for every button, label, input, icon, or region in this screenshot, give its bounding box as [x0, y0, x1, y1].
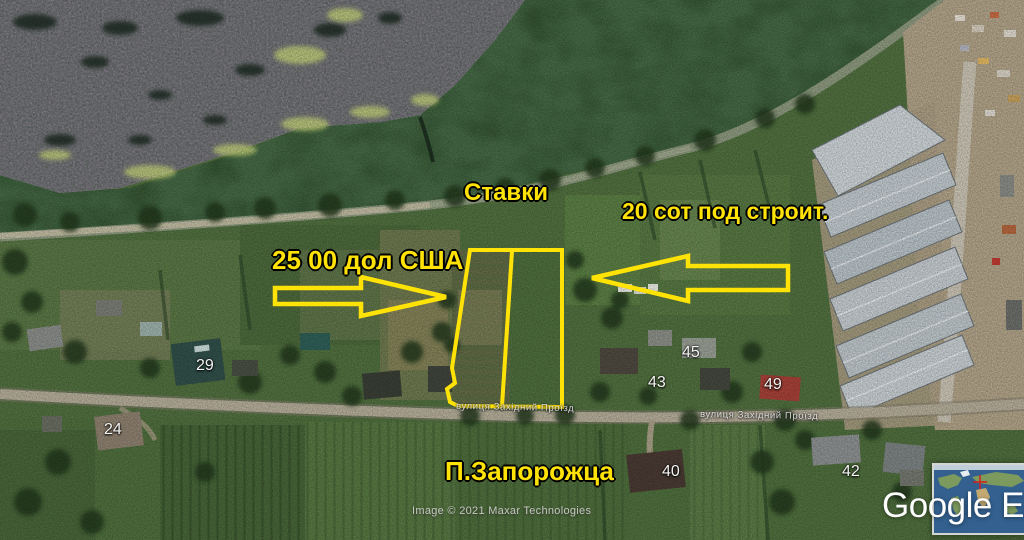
- label-settlement: П.Запорожца: [445, 456, 614, 487]
- house-number: 40: [662, 463, 680, 481]
- label-price: 25 00 дол США: [272, 245, 463, 276]
- house-number: 45: [682, 344, 700, 362]
- street-label: вулиця Західний Проїзд: [700, 409, 818, 422]
- imagery-credit: Image © 2021 Maxar Technologies: [412, 505, 591, 517]
- house-number: 43: [648, 374, 666, 392]
- google-earth-logo: Google Ea: [882, 486, 1024, 526]
- house-number: 24: [104, 421, 122, 439]
- house-number: 49: [764, 376, 782, 394]
- house-number: 42: [842, 463, 860, 481]
- label-ponds: Ставки: [464, 179, 548, 207]
- house-number: 29: [196, 357, 214, 375]
- google-earth-viewport[interactable]: Ставки 20 сот под строит. 25 00 дол США …: [0, 0, 1024, 540]
- label-area: 20 сот под строит.: [622, 198, 828, 225]
